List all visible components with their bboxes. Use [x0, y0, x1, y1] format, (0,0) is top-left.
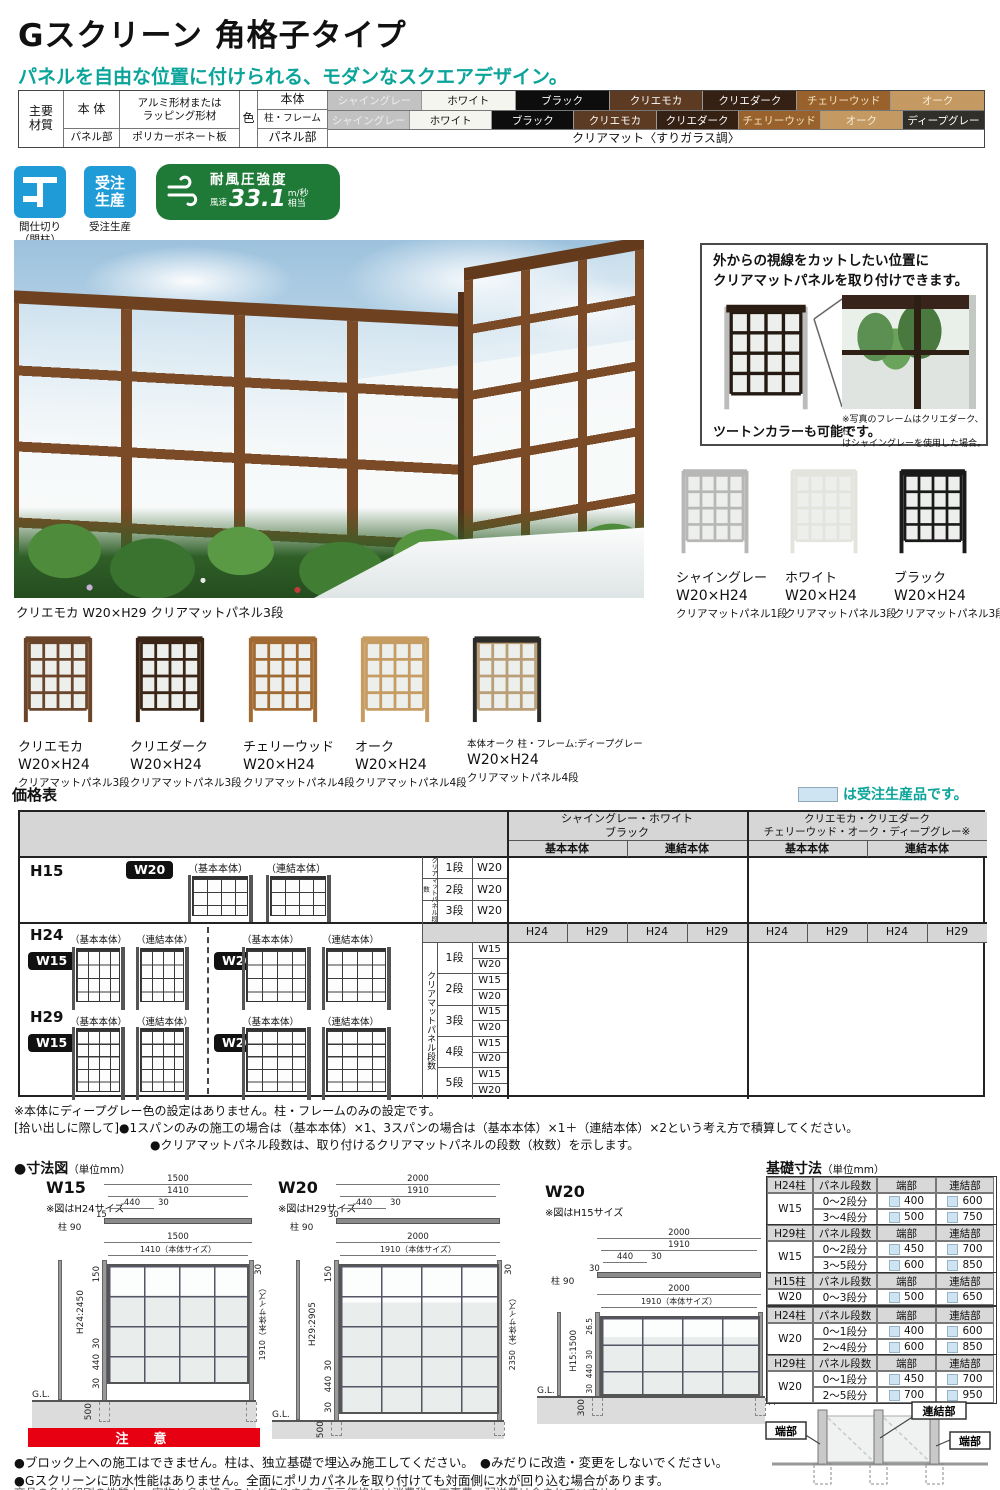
foundation-table-h29-w20: H29柱 パネル段数 端部 連結部 W20 0〜1段分 450 700 2〜5段… [766, 1354, 997, 1404]
link-label: （連結本体） [322, 932, 379, 946]
sub-col-header: 基本本体 [747, 840, 867, 857]
w-cell: W20 [472, 900, 507, 922]
material-header-col: 主要 材質 [19, 91, 63, 147]
variation-black: ブラック W20×H24 クリアマットパネル3段 [894, 463, 1000, 621]
mini-fence [76, 1028, 120, 1092]
footer-note: 商品の色は印刷の性質上、実物と多少違うことがあります。表示価格には消費税、工事費… [14, 1485, 633, 1490]
color-swatch: クリエダーク [656, 111, 738, 129]
spec-table: 主要 材質 本 体 パネル部 アルミ形材または ラッピング形材 ポリカーボネート… [18, 90, 985, 148]
w-cell: W20 [472, 1083, 507, 1099]
hero-photo [14, 240, 644, 598]
w-cell: W15 [472, 1067, 507, 1083]
material-row-label: 本 体 [64, 91, 119, 128]
color-group-header: クリエモカ・クリエダーク チェリーウッド・オーク・ディープグレー※ [747, 812, 987, 840]
h29-label: H29 [30, 1008, 63, 1026]
note-line: ●クリアマットパネル段数は、取り付けるクリアマットパネルの段数（枚数）を示します… [150, 1136, 639, 1153]
h-sub: H29 [807, 922, 867, 942]
note-line: ※本体にディープグレー色の設定はありません。柱・フレームのみの設定です。 [14, 1102, 441, 1119]
w-cell: W20 [472, 879, 507, 900]
variation-cherry: チェリーウッド W20×H24 クリアマットパネル4段 [243, 630, 355, 790]
color-header: 色 [240, 91, 257, 147]
frame-color-swatches: シャイングレー ホワイト ブラック クリエモカ クリエダーク チェリーウッド オ… [328, 110, 984, 129]
mini-fence [326, 948, 386, 1002]
color-swatch: チェリーウッド [738, 111, 820, 129]
basic-label: （基本本体） [242, 932, 299, 946]
body-color-swatches: シャイングレー ホワイト ブラック クリエモカ クリエダーク チェリーウッド オ… [328, 91, 984, 110]
basic-label: （基本本体） [70, 932, 127, 946]
mini-fence [140, 948, 184, 1002]
foundation-table-h24-w15: H24柱 パネル段数 端部 連結部 W15 0〜2段分 400 600 3〜4段… [766, 1176, 997, 1226]
panel-color-value: クリアマット〈すりガラス調〉 [328, 129, 984, 147]
mini-fence [326, 1028, 386, 1092]
color-group-header: シャイングレー・ホワイト ブラック [507, 812, 747, 840]
color-swatch: シャイングレー [328, 111, 409, 129]
wind-pressure-badge: 耐風圧強度 風速 33.1 m/秒 相当 [156, 164, 340, 220]
color-swatch: ホワイト [409, 111, 491, 129]
material-row-label: パネル部 [64, 128, 119, 146]
w-cell: W20 [472, 857, 507, 879]
dimension-drawing-w15: W15 ※図はH24サイズ 1500 1410 440 30 15 柱 90 1… [28, 1172, 278, 1440]
w-group-divider [207, 927, 209, 1094]
link-label: （連結本体） [136, 932, 193, 946]
h-sub: H24 [867, 922, 927, 942]
info-box: 外からの視線をカットしたい位置に クリアマットパネルを取り付けできます。 ツート… [700, 243, 988, 446]
dimension-drawing-w20-h29: W20 ※図はH29サイズ 2000 1910 440 30 30 柱 90 2… [272, 1172, 522, 1440]
dan-cell: 3段 [437, 1005, 472, 1036]
variation-mocha: クリエモカ W20×H24 クリアマットパネル3段 [18, 630, 130, 790]
caution-line: ●ブロック上への施工はできません。柱は、独立基礎で埋込み施工してください。 ●み… [14, 1452, 728, 1471]
dan-cell: 3段 [437, 900, 472, 922]
color-swatch: クリエモカ [573, 111, 655, 129]
wind-prefix: 風速 [210, 199, 227, 208]
variation-oak: オーク W20×H24 クリアマットパネル4段 [355, 630, 467, 790]
dan-col-label: クリアマットパネル段数 [422, 857, 437, 922]
color-swatch: チェリーウッド [796, 91, 890, 110]
frame-rail [842, 350, 976, 355]
h24-label: H24 [30, 926, 63, 944]
wind-value: 33.1 [229, 188, 286, 211]
foundation-table-h15-w20: H15柱 パネル段数 端部 連結部 W20 0〜3段分 500 650 [766, 1272, 997, 1306]
dan-cell: 1段 [437, 857, 472, 879]
color-swatch: シャイングレー [328, 91, 421, 110]
mini-fence [270, 876, 326, 916]
foundation-heading: 基礎寸法（単位mm） [766, 1158, 884, 1178]
color-row-label: 本体 [258, 91, 327, 109]
material-value: ポリカーボネート板 [120, 128, 239, 146]
w-cell: W15 [472, 1036, 507, 1052]
dan-cell: 5段 [437, 1067, 472, 1099]
h-sub: H24 [627, 922, 687, 942]
photo-note: ※写真のフレームはクリエダーク、柱 はシャイングレーを使用した場合。 [842, 414, 986, 450]
frame-top-bar [842, 295, 976, 309]
note-line: [拾い出しに際して]●1スパンのみの施工の場合は（基本本体）×1、3スパンの場合… [14, 1119, 858, 1136]
made-to-order-legend-swatch [798, 787, 838, 802]
color-swatch: ブラック [491, 111, 573, 129]
link-label: 連結部 [923, 1404, 956, 1418]
w-cell: W15 [472, 973, 507, 989]
end-label: 端部 [959, 1434, 981, 1448]
h15-label: H15 [30, 862, 63, 880]
dan-cell: 2段 [437, 879, 472, 900]
link-label: （連結本体） [322, 1014, 379, 1028]
material-value: アルミ形材または ラッピング形材 [120, 91, 239, 128]
color-swatch: ディープグレー [902, 111, 984, 129]
basic-label: （基本本体） [188, 860, 248, 875]
w20-badge: W20 [126, 861, 173, 879]
price-table-heading: 価格表 [12, 784, 57, 805]
gray-post [969, 295, 976, 409]
partition-icon [14, 166, 66, 218]
dan-cell: 4段 [437, 1036, 472, 1067]
made-to-order-icon: 受注 生産 [84, 166, 136, 218]
color-swatch: ブラック [515, 91, 609, 110]
dimension-drawing-w20-h15: W20 ※図はH15サイズ 2000 1910 440 30 30 柱 90 2… [537, 1172, 787, 1440]
wind-icon [166, 175, 202, 209]
made-to-order-legend: は受注生産品です。 [843, 784, 968, 804]
variation-white: ホワイト W20×H24 クリアマットパネル3段 [785, 463, 897, 621]
made-to-order-label: 受注生産 [80, 221, 140, 234]
variation-oak-deepgray: 本体オーク 柱・フレーム:ディープグレー W20×H24 クリアマットパネル4段 [467, 630, 643, 785]
w-cell: W15 [472, 942, 507, 958]
detail-photo [842, 295, 976, 409]
material-header: 主要 材質 [19, 91, 63, 147]
h-sub: H29 [687, 922, 747, 942]
basic-label: （基本本体） [242, 1014, 299, 1028]
w-cell: W20 [472, 958, 507, 973]
w-cell: W15 [472, 1005, 507, 1020]
color-swatch: オーク [820, 111, 902, 129]
variation-shine-gray: シャイングレー W20×H24 クリアマットパネル1段 [676, 463, 788, 621]
page-subtitle: パネルを自由な位置に付けられる、モダンなスクエアデザイン。 [18, 62, 568, 89]
color-swatch: クリエモカ [609, 91, 703, 110]
h-sub: H29 [927, 922, 987, 942]
dan-col-label: クリアマットパネル段数 [422, 942, 437, 1099]
w15-badge: W15 [28, 1034, 75, 1052]
mini-fence [76, 948, 120, 1002]
link-label: （連結本体） [266, 860, 326, 875]
variation-dark: クリエダーク W20×H24 クリアマットパネル3段 [130, 630, 242, 790]
hero-caption: クリエモカ W20×H29 クリアマットパネル3段 [16, 602, 283, 621]
catalog-page: Gスクリーン 角格子タイプ パネルを自由な位置に付けられる、モダンなスクエアデザ… [0, 0, 1000, 1490]
w-cell: W20 [472, 989, 507, 1005]
h-sub: H24 [747, 922, 807, 942]
price-table: シャイングレー・ホワイト ブラック クリエモカ・クリエダーク チェリーウッド・オ… [18, 810, 985, 1097]
foundation-table-h29-w15: H29柱 パネル段数 端部 連結部 W15 0〜2段分 450 700 3〜5段… [766, 1224, 997, 1274]
wind-unit: m/秒 相当 [288, 190, 309, 210]
link-label: （連結本体） [136, 1014, 193, 1028]
w-cell: W20 [472, 1052, 507, 1067]
end-label: 端部 [775, 1424, 797, 1438]
dan-cell: 1段 [437, 942, 472, 973]
w-cell: W20 [472, 1020, 507, 1036]
mini-fence [246, 1028, 306, 1092]
foundation-table-h24-w20: H24柱 パネル段数 端部 連結部 W20 0〜1段分 400 600 2〜4段… [766, 1306, 997, 1356]
mini-fence [246, 948, 306, 1002]
h-sub: H29 [567, 922, 627, 942]
h-sub: H24 [507, 922, 567, 942]
color-swatch: クリエダーク [702, 91, 796, 110]
page-title: Gスクリーン 角格子タイプ [18, 10, 407, 55]
basic-label: （基本本体） [70, 1014, 127, 1028]
mini-fence [140, 1028, 184, 1092]
sub-col-header: 基本本体 [507, 840, 627, 857]
sub-col-header: 連結本体 [867, 840, 987, 857]
w15-badge: W15 [28, 952, 75, 970]
caution-heading: 注 意 [28, 1428, 260, 1447]
color-row-label: 柱・フレーム [258, 109, 327, 128]
color-swatch: オーク [890, 91, 984, 110]
color-swatch: ホワイト [421, 91, 515, 110]
mini-fence [192, 876, 248, 916]
dan-cell: 2段 [437, 973, 472, 1005]
end-link-diagram: 端部 連結部 端部 [764, 1400, 996, 1488]
color-row-label: パネル部 [258, 128, 327, 146]
sub-col-header: 連結本体 [627, 840, 747, 857]
